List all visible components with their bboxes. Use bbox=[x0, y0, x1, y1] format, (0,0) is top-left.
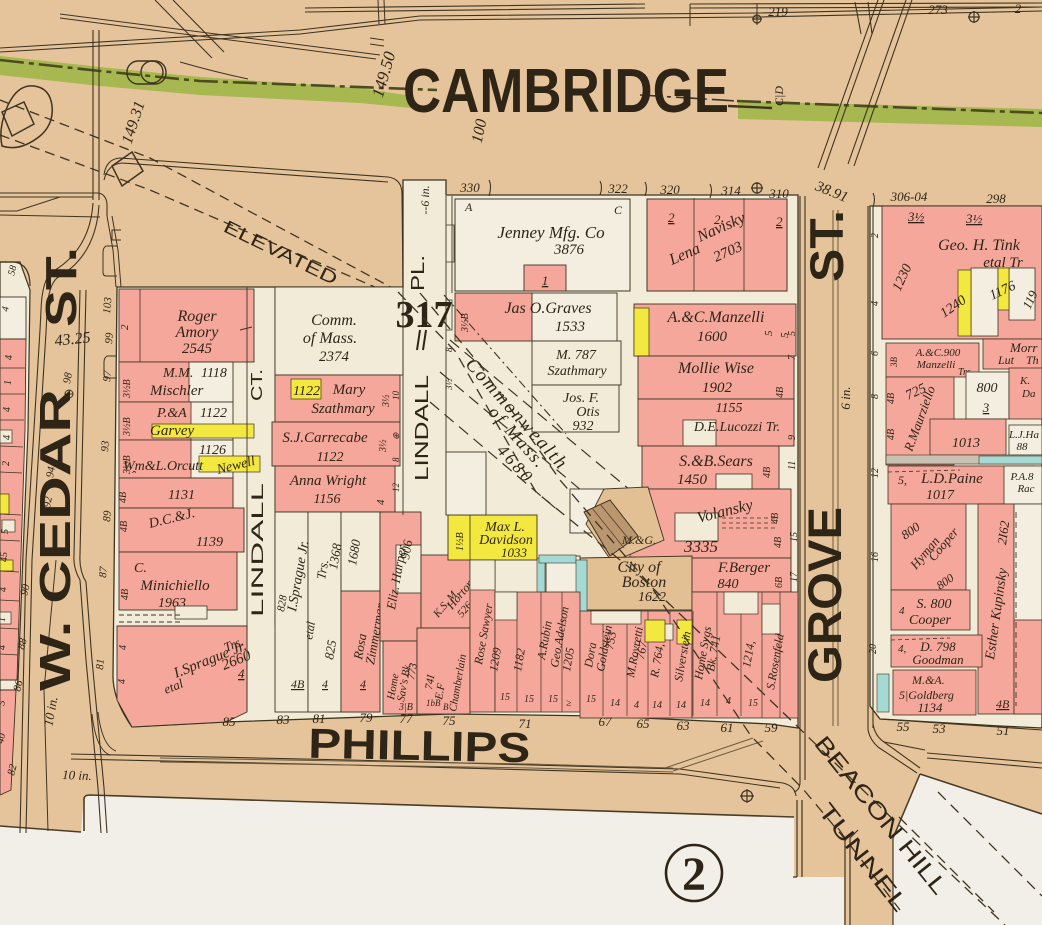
svg-text:K.: K. bbox=[1019, 375, 1030, 387]
svg-text:PHILLIPS: PHILLIPS bbox=[308, 720, 531, 772]
svg-text:W̭m&L.Orcutt: W̭m&L.Orcutt bbox=[123, 459, 204, 474]
svg-text:Amory: Amory bbox=[175, 324, 220, 341]
svg-text:4B: 4B bbox=[773, 537, 784, 548]
svg-text:61: 61 bbox=[721, 720, 734, 735]
svg-text:C.: C. bbox=[134, 561, 147, 576]
svg-text:P.&A: P.&A bbox=[156, 406, 187, 421]
svg-text:Rac: Rac bbox=[1016, 483, 1034, 495]
svg-text:etal Tr: etal Tr bbox=[983, 255, 1023, 271]
svg-text:⊕: ⊕ bbox=[391, 432, 401, 440]
svg-text:840: 840 bbox=[718, 577, 739, 592]
svg-text:4B: 4B bbox=[775, 387, 786, 398]
svg-text:Mary: Mary bbox=[332, 382, 366, 398]
svg-text:4B: 4B bbox=[762, 467, 773, 478]
svg-text:15: 15 bbox=[586, 694, 596, 705]
svg-text:89: 89 bbox=[101, 510, 114, 523]
svg-text:2: 2 bbox=[682, 848, 706, 901]
svg-text:1: 1 bbox=[3, 380, 14, 385]
svg-text:4: 4 bbox=[118, 645, 129, 650]
svg-text:88: 88 bbox=[1017, 441, 1029, 453]
svg-text:1126: 1126 bbox=[199, 443, 226, 458]
svg-text:4: 4 bbox=[0, 645, 8, 650]
svg-text:4B: 4B bbox=[118, 492, 129, 503]
svg-text:99: 99 bbox=[103, 332, 116, 345]
svg-text:5: 5 bbox=[763, 330, 775, 336]
svg-text:1bB: 1bB bbox=[426, 698, 441, 708]
svg-text:14: 14 bbox=[676, 700, 686, 711]
svg-text:103: 103 bbox=[101, 296, 114, 314]
svg-text:4: 4 bbox=[117, 679, 128, 684]
svg-text:6B: 6B bbox=[774, 577, 785, 588]
svg-text:3½B: 3½B bbox=[122, 379, 133, 399]
svg-text:Jas O.Graves: Jas O.Graves bbox=[504, 300, 591, 317]
svg-text:2374: 2374 bbox=[319, 349, 350, 365]
svg-text:Anna Wright: Anna Wright bbox=[289, 473, 367, 489]
svg-text:L.J.Ha: L.J.Ha bbox=[1008, 429, 1039, 441]
svg-text:4B: 4B bbox=[886, 429, 897, 440]
svg-text:14: 14 bbox=[610, 698, 620, 709]
svg-text:85: 85 bbox=[223, 714, 237, 729]
svg-text:Geo. H. Tink: Geo. H. Tink bbox=[938, 237, 1021, 254]
svg-text:1013: 1013 bbox=[952, 436, 980, 451]
svg-text:2: 2 bbox=[870, 233, 881, 238]
svg-text:M. 787: M. 787 bbox=[555, 348, 597, 363]
svg-text:2: 2 bbox=[1, 461, 12, 466]
svg-text:1155: 1155 bbox=[716, 401, 743, 416]
svg-text:298: 298 bbox=[986, 191, 1006, 206]
svg-text:310: 310 bbox=[768, 186, 789, 201]
svg-text:1118: 1118 bbox=[201, 366, 227, 381]
svg-text:A.&C.Manzelli: A.&C.Manzelli bbox=[667, 309, 765, 326]
svg-text:M.M.: M.M. bbox=[162, 366, 193, 381]
svg-text:4B: 4B bbox=[886, 393, 897, 404]
svg-text:3½: 3½ bbox=[378, 439, 389, 453]
svg-text:2: 2 bbox=[668, 210, 675, 225]
svg-text:1122: 1122 bbox=[317, 450, 344, 465]
svg-text:Minichiello: Minichiello bbox=[139, 578, 210, 594]
svg-text:15: 15 bbox=[748, 698, 758, 709]
svg-text:LINDALL: LINDALL bbox=[248, 483, 267, 617]
svg-text:6 in.: 6 in. bbox=[838, 386, 853, 409]
svg-text:D.E.Lucozzi Tr.: D.E.Lucozzi Tr. bbox=[693, 420, 780, 435]
svg-text:1122: 1122 bbox=[200, 406, 227, 421]
svg-text:4,: 4, bbox=[898, 643, 907, 655]
svg-text:5,: 5, bbox=[898, 473, 907, 487]
svg-text:1122: 1122 bbox=[293, 384, 320, 399]
svg-text:9: 9 bbox=[787, 435, 798, 440]
svg-text:ST.: ST. bbox=[37, 247, 86, 327]
svg-text:2545: 2545 bbox=[182, 341, 213, 357]
svg-text:ST.: ST. bbox=[800, 210, 853, 282]
svg-text:8: 8 bbox=[391, 457, 401, 462]
svg-text:Jos. F.: Jos. F. bbox=[563, 391, 599, 406]
svg-text:4: 4 bbox=[634, 700, 639, 711]
svg-text:Boston: Boston bbox=[622, 574, 666, 591]
svg-text:Jenney Mfg. Co: Jenney Mfg. Co bbox=[497, 223, 604, 242]
svg-text:A: A bbox=[464, 200, 473, 214]
svg-text:8: 8 bbox=[870, 394, 881, 399]
svg-text:3B: 3B bbox=[889, 357, 899, 369]
svg-text:45: 45 bbox=[0, 552, 10, 562]
svg-text:4: 4 bbox=[360, 677, 366, 691]
svg-text:LINDALL: LINDALL bbox=[412, 375, 432, 481]
svg-text:Cooper: Cooper bbox=[909, 613, 952, 628]
svg-text:1600: 1600 bbox=[697, 329, 728, 345]
svg-text:A.&C.900: A.&C.900 bbox=[915, 347, 961, 359]
svg-text:S. 800: S. 800 bbox=[917, 597, 952, 612]
svg-text:11: 11 bbox=[787, 461, 798, 470]
svg-text:87: 87 bbox=[97, 566, 110, 579]
svg-text:4: 4 bbox=[322, 677, 328, 691]
svg-text:4: 4 bbox=[238, 666, 245, 681]
svg-text:10: 10 bbox=[391, 391, 401, 401]
svg-text:1017: 1017 bbox=[926, 488, 955, 503]
svg-text:Szathmary: Szathmary bbox=[547, 364, 607, 379]
svg-text:81: 81 bbox=[94, 658, 107, 670]
svg-text:314: 314 bbox=[720, 183, 741, 198]
svg-text:1450: 1450 bbox=[677, 472, 708, 488]
svg-text:≥: ≥ bbox=[566, 698, 572, 709]
svg-text:GROVE: GROVE bbox=[798, 507, 851, 683]
svg-text:3335: 3335 bbox=[683, 537, 718, 556]
svg-text:Garvey: Garvey bbox=[150, 423, 194, 439]
svg-text:1: 1 bbox=[0, 617, 8, 622]
svg-text:Manzelli: Manzelli bbox=[916, 359, 956, 371]
svg-text:1139: 1139 bbox=[196, 535, 223, 550]
svg-text:16: 16 bbox=[870, 552, 881, 562]
svg-text:Th: Th bbox=[1026, 353, 1039, 367]
svg-text:93: 93 bbox=[99, 440, 112, 453]
svg-text:800: 800 bbox=[977, 381, 998, 396]
svg-text:15: 15 bbox=[524, 694, 534, 705]
svg-text:306-04: 306-04 bbox=[890, 189, 928, 204]
svg-text:PL.: PL. bbox=[408, 255, 428, 291]
svg-text:932: 932 bbox=[573, 419, 594, 434]
svg-text:3½: 3½ bbox=[907, 209, 925, 224]
svg-text:Lut: Lut bbox=[997, 353, 1015, 367]
svg-text:4: 4 bbox=[2, 435, 13, 440]
svg-text:317: 317 bbox=[396, 294, 453, 336]
svg-text:14: 14 bbox=[700, 698, 710, 709]
svg-text:322: 322 bbox=[607, 181, 628, 196]
svg-text:M.&A.: M.&A. bbox=[911, 673, 945, 687]
svg-text:P.A.8: P.A.8 bbox=[1009, 471, 1034, 483]
svg-text:6: 6 bbox=[870, 351, 881, 356]
svg-text:4B: 4B bbox=[119, 521, 130, 532]
svg-text:1: 1 bbox=[542, 273, 549, 288]
svg-text:4: 4 bbox=[4, 355, 15, 360]
svg-text:Mischler: Mischler bbox=[149, 383, 203, 399]
svg-text:B: B bbox=[443, 702, 449, 712]
svg-text:320: 320 bbox=[659, 182, 680, 197]
svg-text:10 in.: 10 in. bbox=[62, 767, 92, 783]
svg-text:1033: 1033 bbox=[501, 545, 528, 560]
svg-text:of Mass.: of Mass. bbox=[303, 330, 357, 347]
svg-text:2: 2 bbox=[776, 214, 783, 229]
svg-text:4B: 4B bbox=[291, 677, 305, 691]
svg-text:330: 330 bbox=[459, 180, 480, 195]
svg-text:--6 in.: --6 in. bbox=[418, 185, 432, 214]
svg-text:W. CEDAR: W. CEDAR bbox=[31, 389, 80, 691]
svg-text:12: 12 bbox=[391, 483, 401, 493]
svg-text:1½B: 1½B bbox=[455, 532, 466, 551]
svg-text:1622: 1622 bbox=[638, 590, 666, 605]
svg-text:65: 65 bbox=[637, 716, 651, 731]
svg-text:CT.: CT. bbox=[249, 369, 266, 401]
svg-text:L.D.Paine: L.D.Paine bbox=[920, 471, 983, 487]
svg-text:3876: 3876 bbox=[553, 242, 585, 258]
svg-text:1134: 1134 bbox=[917, 700, 943, 715]
svg-text:Roger: Roger bbox=[176, 308, 217, 325]
svg-text:Comm.: Comm. bbox=[311, 312, 357, 329]
svg-text:4: 4 bbox=[0, 587, 9, 592]
svg-text:4B: 4B bbox=[770, 513, 781, 524]
svg-text:2: 2 bbox=[1015, 1, 1022, 16]
svg-text:12: 12 bbox=[870, 468, 881, 478]
svg-text:Otis: Otis bbox=[576, 405, 600, 420]
svg-text:4B: 4B bbox=[996, 697, 1010, 711]
svg-text:3½B: 3½B bbox=[460, 313, 471, 333]
svg-text:S.&B.Sears: S.&B.Sears bbox=[679, 453, 753, 470]
svg-text:97: 97 bbox=[101, 370, 114, 383]
svg-text:63: 63 bbox=[677, 718, 691, 733]
svg-text:3½: 3½ bbox=[444, 379, 454, 392]
svg-text:3: 3 bbox=[982, 400, 990, 415]
svg-text:4B: 4B bbox=[120, 589, 131, 600]
svg-text:5: 5 bbox=[0, 529, 11, 534]
svg-text:15: 15 bbox=[548, 694, 558, 705]
svg-text:4: 4 bbox=[375, 499, 387, 505]
svg-text:3½: 3½ bbox=[965, 211, 983, 226]
svg-text:4: 4 bbox=[899, 605, 905, 617]
svg-text:Da: Da bbox=[1021, 388, 1036, 400]
svg-text:1156: 1156 bbox=[314, 492, 341, 507]
svg-text:15: 15 bbox=[500, 692, 510, 703]
svg-text:4: 4 bbox=[870, 301, 881, 306]
svg-text:51: 51 bbox=[997, 723, 1010, 738]
svg-text:CAMBRIDGE: CAMBRIDGE bbox=[403, 57, 729, 126]
svg-text:59: 59 bbox=[765, 720, 779, 735]
svg-text:67: 67 bbox=[599, 714, 613, 729]
svg-text:3½B: 3½B bbox=[122, 417, 133, 437]
svg-text:Szathmary: Szathmary bbox=[311, 401, 375, 417]
svg-text:C: C bbox=[614, 203, 623, 217]
svg-text:F.Berger: F.Berger bbox=[717, 560, 770, 576]
svg-text:S.J.Carrecabe: S.J.Carrecabe bbox=[282, 430, 368, 446]
svg-text:219: 219 bbox=[768, 4, 788, 19]
svg-text:83: 83 bbox=[277, 712, 291, 727]
svg-text:Goodman: Goodman bbox=[912, 652, 963, 667]
svg-text:5: 5 bbox=[787, 331, 798, 336]
svg-text:14: 14 bbox=[652, 700, 662, 711]
svg-text:273: 273 bbox=[928, 2, 948, 17]
svg-text:1131: 1131 bbox=[168, 488, 195, 503]
svg-text:Mollie Wise: Mollie Wise bbox=[677, 360, 754, 377]
svg-text:1533: 1533 bbox=[555, 319, 585, 335]
svg-text:1902: 1902 bbox=[702, 380, 733, 396]
svg-text:4: 4 bbox=[2, 407, 13, 412]
svg-text:2: 2 bbox=[119, 324, 131, 330]
svg-text:C|D: C|D bbox=[772, 86, 786, 106]
svg-text:M.&G.: M.&G. bbox=[621, 533, 656, 547]
